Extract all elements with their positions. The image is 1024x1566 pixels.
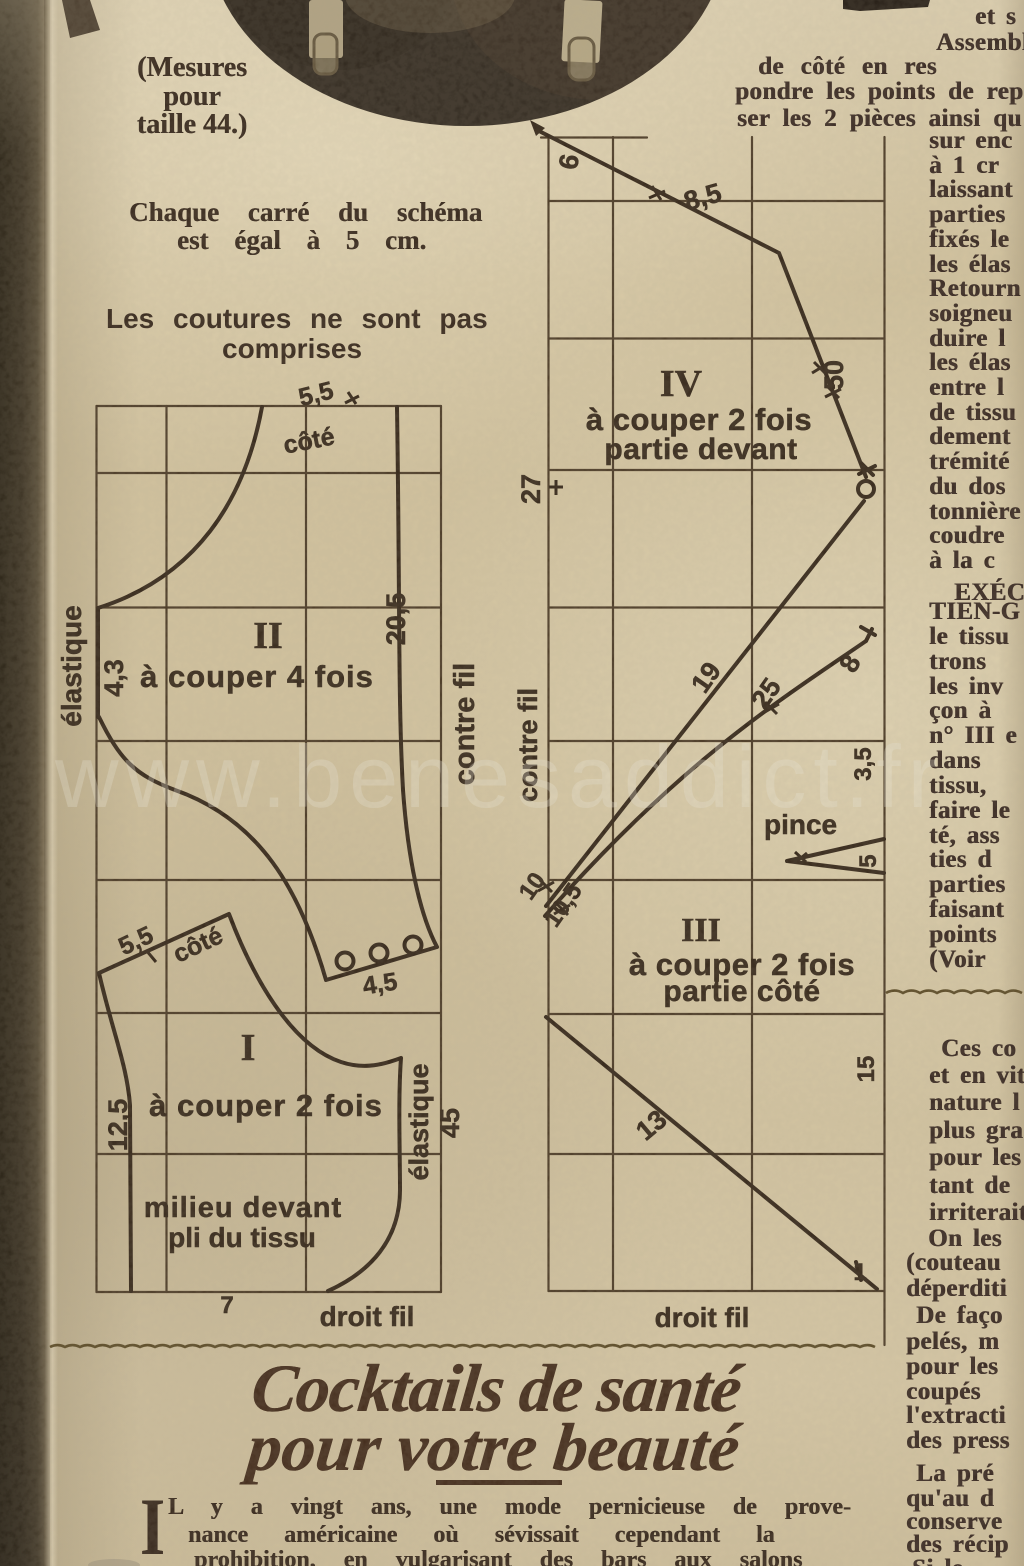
svg-text:III: III	[681, 912, 721, 949]
svg-text:4,5: 4,5	[361, 967, 400, 1000]
svg-text:8: 8	[833, 649, 866, 677]
svg-text:1: 1	[853, 1259, 866, 1286]
svg-text:à couper 2 fois: à couper 2 fois	[629, 947, 855, 982]
svg-text:13: 13	[630, 1104, 672, 1146]
svg-text:à couper 2 fois: à couper 2 fois	[586, 402, 812, 437]
svg-text:5,5: 5,5	[114, 921, 157, 961]
svg-text:10,5: 10,5	[539, 878, 588, 932]
svg-text:à couper 2 fois: à couper 2 fois	[149, 1088, 383, 1123]
svg-text:partie côté: partie côté	[663, 975, 820, 1008]
svg-text:7: 7	[220, 1292, 233, 1319]
svg-text:19: 19	[685, 657, 727, 699]
svg-text:4,3: 4,3	[99, 659, 129, 697]
svg-text:5: 5	[855, 854, 882, 867]
svg-text:élastique: élastique	[404, 1063, 434, 1180]
svg-text:pli du tissu: pli du tissu	[168, 1222, 316, 1253]
svg-text:15: 15	[853, 1056, 880, 1083]
svg-text:IV: IV	[660, 363, 703, 405]
svg-text:12,5: 12,5	[103, 1099, 133, 1152]
svg-text:droit fil: droit fil	[320, 1301, 415, 1332]
svg-text:côté: côté	[281, 422, 337, 459]
svg-text:27: 27	[516, 474, 546, 504]
svg-text:10: 10	[514, 868, 551, 905]
svg-text:I: I	[241, 1027, 256, 1069]
svg-text:droit fil: droit fil	[655, 1302, 750, 1333]
svg-text:partie devant: partie devant	[604, 433, 797, 466]
svg-text:25: 25	[745, 673, 787, 715]
svg-text:côté: côté	[169, 921, 228, 968]
svg-text:5,5: 5,5	[296, 376, 337, 412]
svg-text:milieu devant: milieu devant	[144, 1192, 342, 1224]
svg-text:50: 50	[819, 360, 849, 390]
svg-text:à couper 4 fois: à couper 4 fois	[140, 659, 374, 694]
svg-text:8,5: 8,5	[681, 177, 725, 216]
svg-text:6: 6	[553, 152, 585, 172]
svg-text:élastique: élastique	[56, 605, 87, 726]
svg-text:II: II	[253, 615, 283, 657]
svg-text:20,5: 20,5	[381, 593, 411, 646]
svg-text:45: 45	[435, 1108, 465, 1138]
